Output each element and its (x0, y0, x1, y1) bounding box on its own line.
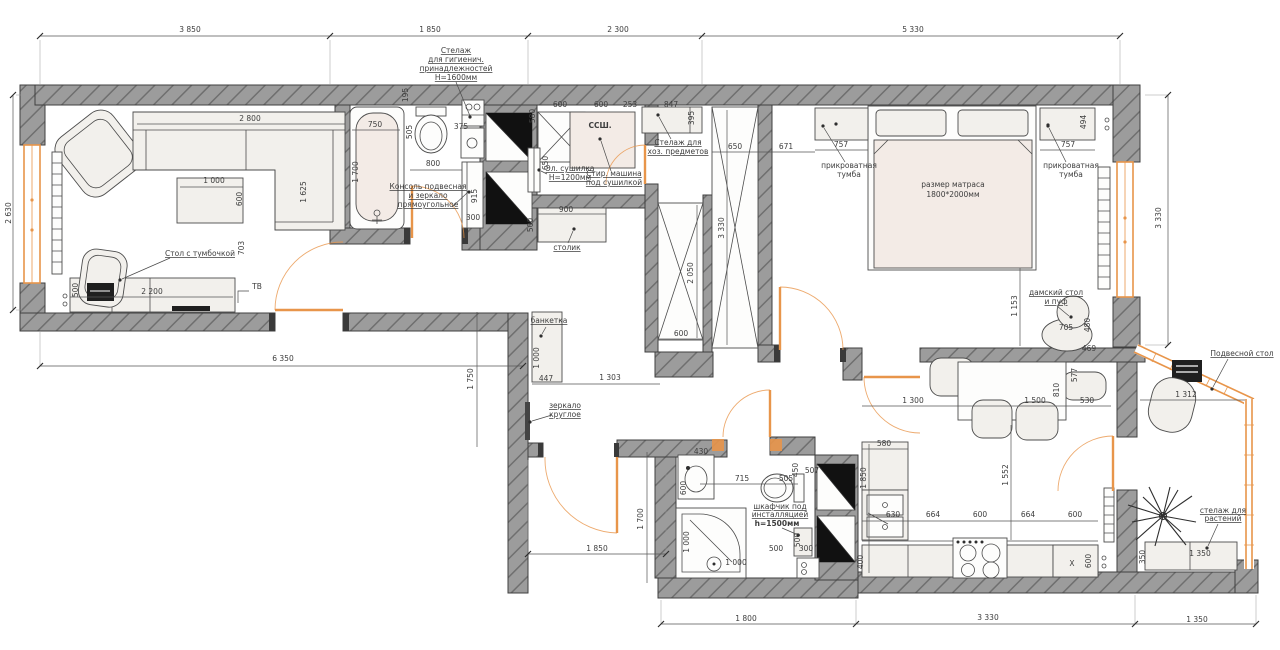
radiator (52, 152, 62, 274)
floor-plan-page: 3 8501 8502 3005 330Стелаждля гигиенич.п… (0, 0, 1280, 650)
dimension-text: 450 (791, 463, 800, 478)
dimension-text: 3 330 (977, 613, 999, 622)
dimension-text: 500 (769, 544, 784, 553)
vent-shaft-symbol (486, 113, 532, 161)
label-tv: ТВ (251, 282, 262, 291)
washbasin (461, 128, 484, 158)
dimension-text: 1 000 (532, 347, 541, 369)
label-shelf-household: Стелаж для (654, 138, 701, 147)
label-shelf-household: хоз. предметов (648, 147, 709, 156)
label-cabinet-installation: инсталляцией (752, 510, 809, 519)
label-x-cabinet: X (1069, 559, 1074, 568)
dimension-text: 650 (728, 142, 743, 151)
label-mattress: 1800*2000мм (926, 190, 979, 199)
label-nightstand-right: тумба (1059, 170, 1083, 179)
dimension-text: 500 (793, 533, 802, 548)
vent-shaft-symbol (817, 464, 855, 510)
floor-plan-drawing: 3 8501 8502 3005 330Стелаждля гигиенич.п… (0, 0, 1280, 650)
dimension-text: 400 (856, 555, 865, 570)
door-bathroom-2 (723, 390, 770, 437)
label-vanity: дамский стол (1029, 288, 1083, 297)
dimension-text: 500 (71, 283, 80, 298)
dimension-text: 600 (1068, 510, 1083, 519)
label-hanging-table: Подвесной стол (1210, 349, 1273, 358)
dimension-text: 757 (834, 140, 849, 149)
dimension-text: 253 (623, 100, 638, 109)
label-vanity: и пуф (1044, 297, 1067, 306)
label-shelf-hygiene: Стелаж (441, 46, 472, 55)
dimension-text: 1 850 (586, 544, 608, 553)
dimension-text: 600 (1084, 554, 1093, 569)
vent-shaft-symbol (817, 516, 855, 562)
dimension-text: 6 350 (272, 354, 294, 363)
dimension-text: 1 300 (902, 396, 924, 405)
dimension-text: 1 350 (1189, 549, 1211, 558)
dimension-text: 600 (553, 100, 568, 109)
dimension-text: 3 330 (717, 217, 726, 239)
dimension-text: 600 (674, 329, 689, 338)
window-bedroom-right (1117, 162, 1133, 297)
dimension-text: 1 000 (203, 176, 225, 185)
dimension-text: 2 200 (141, 287, 163, 296)
dimension-text: 530 (1080, 396, 1095, 405)
dimension-text: 750 (368, 120, 383, 129)
label-cabinet-installation: h=1500мм (755, 519, 800, 528)
radiator (1104, 488, 1114, 542)
label-nightstand-right: прикроватная (1043, 161, 1099, 170)
dimension-text: 505 (405, 125, 414, 140)
label-plant-shelf: растений (1204, 514, 1241, 523)
stove (953, 538, 1007, 578)
tv (172, 306, 210, 311)
dimension-text: 1 000 (682, 531, 691, 553)
dimension-text: 664 (1021, 510, 1036, 519)
dimension-text: 705 (1059, 323, 1074, 332)
chair (1016, 402, 1058, 440)
pillow (876, 110, 946, 136)
dimension-text: 580 (877, 439, 892, 448)
dimension-text: 1 750 (466, 368, 475, 390)
toilet (415, 107, 447, 153)
dimension-text: 395 (687, 111, 696, 126)
dimension-text: 671 (779, 142, 794, 151)
dimension-text: 447 (539, 374, 554, 383)
dimension-text: 1 625 (299, 181, 308, 203)
plant (1128, 487, 1196, 546)
dimension-text: 2 050 (686, 262, 695, 284)
label-console: и зеркало (408, 191, 448, 200)
nightstand (815, 108, 868, 140)
vent-shaft-symbol (486, 172, 532, 224)
dimension-text: 1 552 (1001, 464, 1010, 486)
dimension-text: 1 850 (419, 25, 441, 34)
dimension-text: 195 (401, 88, 410, 103)
dimension-text: 900 (559, 205, 574, 214)
dimension-text: 375 (454, 122, 469, 131)
dimension-text: 3 850 (179, 25, 201, 34)
label-bench: банкетка (531, 316, 568, 325)
label-washer: Стир. машина (586, 169, 642, 178)
dimension-text: 300 (466, 213, 481, 222)
dimension-text: 810 (1052, 383, 1061, 398)
dimension-text: 715 (735, 474, 750, 483)
dimension-text: 480 (1083, 318, 1092, 333)
chair (1144, 373, 1200, 436)
window-living-left (24, 145, 40, 283)
label-washer-column: ССШ. (588, 121, 611, 130)
dimension-text: 1 800 (735, 614, 757, 623)
door-bedroom (780, 287, 843, 350)
door-living (275, 242, 343, 310)
dimension-text: 664 (926, 510, 941, 519)
dimension-text: 2 300 (607, 25, 629, 34)
dimension-text: 1 153 (1010, 295, 1019, 317)
label-shelf-hygiene: Н=1600мм (435, 73, 477, 82)
dimension-text: 5 330 (902, 25, 924, 34)
dimension-text: 1 500 (1024, 396, 1046, 405)
dimension-text: 494 (1079, 115, 1088, 130)
dimension-text: 800 (426, 159, 441, 168)
dimension-text: 630 (886, 510, 901, 519)
label-shelf-hygiene: для гигиенич. (428, 55, 484, 64)
dimension-text: 3 330 (1154, 207, 1163, 229)
label-console: Консоль подвесная (390, 182, 467, 191)
label-dryer: Н=1200мм (549, 173, 591, 182)
dimension-text: 1 850 (859, 467, 868, 489)
door-kitchen-dining (864, 377, 920, 433)
dimension-text: 600 (594, 100, 609, 109)
mattress (874, 140, 1032, 268)
label-washer: под сушилкой (586, 178, 642, 187)
dimension-text: 500 (526, 218, 535, 233)
label-desk: Стол с тумбочкой (165, 249, 235, 258)
dimension-text: 703 (237, 241, 246, 256)
door-hall-lower (545, 457, 617, 533)
label-mattress: размер матраса (921, 180, 984, 189)
dimension-text: 1 350 (1186, 615, 1208, 624)
furniture-living-room (48, 104, 345, 312)
door-balcony (1058, 436, 1113, 491)
dimension-text: 580 (528, 109, 537, 124)
dimension-text: 600 (679, 481, 688, 496)
label-console: прямоугольное (398, 200, 459, 209)
dimension-text: 1 700 (351, 161, 360, 183)
label-shelf-hygiene: принадлежностей (420, 64, 493, 73)
label-small-table: столик (553, 243, 581, 252)
dimension-text: 2 630 (4, 202, 13, 224)
label-round-mirror: круглое (549, 410, 581, 419)
dimension-text: 600 (235, 192, 244, 207)
dimension-text: 915 (470, 189, 479, 204)
label-round-mirror: зеркало (549, 401, 581, 410)
printer (87, 283, 114, 301)
label-nightstand-left: прикроватная (821, 161, 877, 170)
dimension-text: 600 (973, 510, 988, 519)
dimension-text: 469 (1082, 344, 1097, 353)
dimension-text: 1 700 (636, 508, 645, 530)
dimension-text: 1 312 (1175, 390, 1197, 399)
dimension-text: 1 000 (725, 558, 747, 567)
dimension-text: 847 (664, 100, 679, 109)
dimension-text: 430 (694, 447, 709, 456)
dimension-text: 350 (1138, 550, 1147, 565)
radiator (1098, 167, 1110, 289)
dimension-text: 2 800 (239, 114, 261, 123)
pillow (958, 110, 1028, 136)
dimension-text: 577 (1070, 368, 1079, 383)
dimension-text: 757 (1061, 140, 1076, 149)
window-balcony-right (1244, 399, 1254, 569)
wardrobe (658, 203, 703, 340)
dimension-text: 1 303 (599, 373, 621, 382)
water-heater (797, 558, 819, 578)
label-nightstand-left: тумба (837, 170, 861, 179)
dimension-text: 507 (805, 466, 820, 475)
